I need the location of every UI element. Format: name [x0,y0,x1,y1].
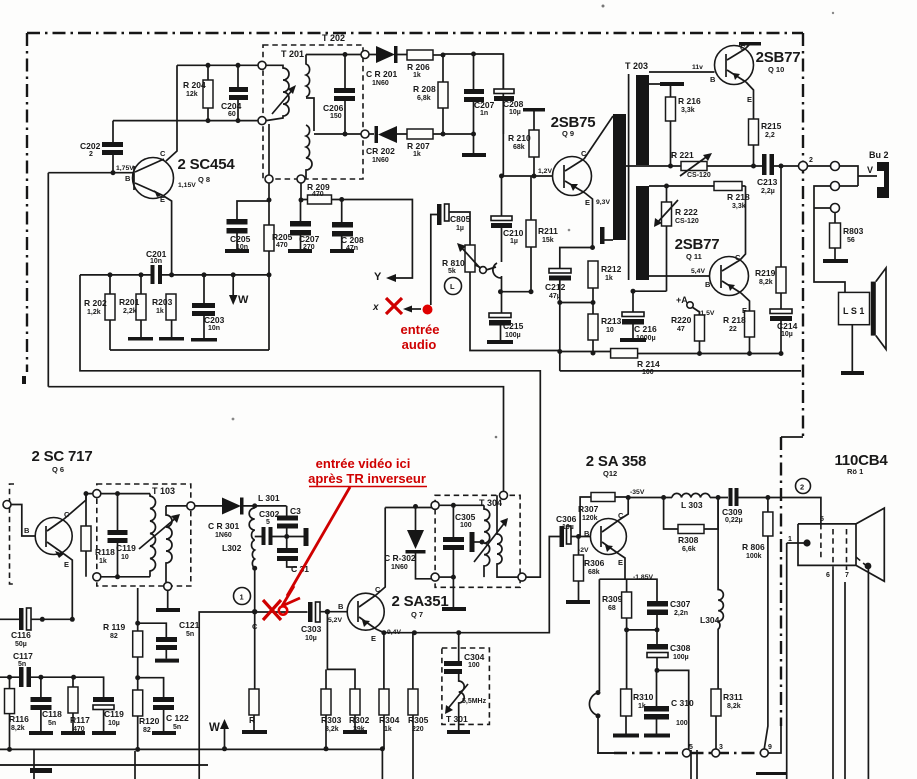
svg-text:entrée vidéo ici: entrée vidéo ici [316,456,411,471]
svg-text:audio: audio [402,337,437,352]
svg-text:après TR inverseur: après TR inverseur [308,471,426,486]
svg-text:entrée: entrée [400,322,439,337]
svg-text:x: x [372,302,379,313]
